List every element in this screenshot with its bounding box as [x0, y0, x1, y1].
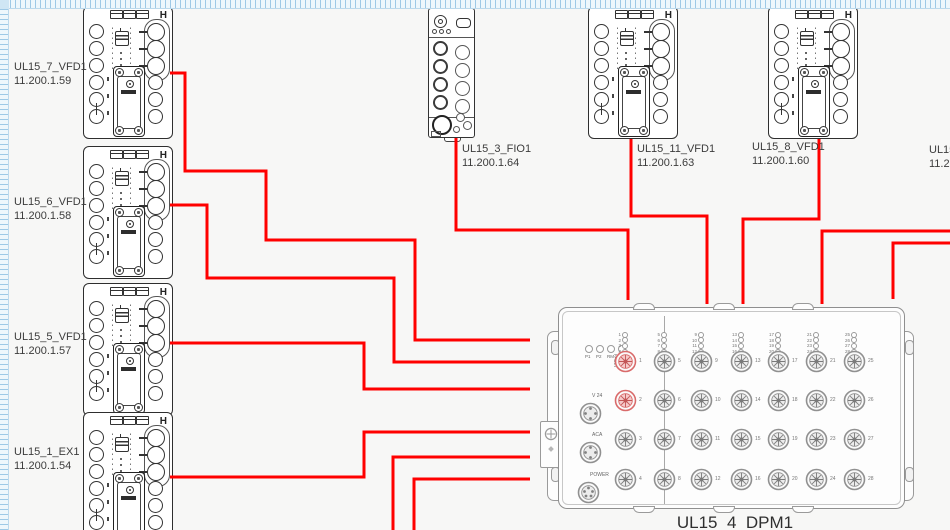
dot [120, 58, 122, 60]
port-number: 20 [792, 476, 798, 482]
dot [805, 52, 807, 54]
connector-icon [115, 31, 129, 46]
port-circle-icon [594, 75, 609, 90]
terminal-block-icon [795, 10, 808, 19]
tick-mark [792, 111, 794, 115]
vfd-module-body: H [83, 6, 173, 139]
port-number: 9 [715, 358, 718, 364]
port-number: 22 [830, 397, 836, 403]
device-name: UL15_11_VFD1 [637, 142, 715, 156]
status-led-p2 [596, 345, 604, 353]
terminal-block-icon [136, 10, 149, 19]
port-circle-icon [89, 215, 104, 230]
dpm-port-9 [690, 350, 713, 378]
label-bar [121, 230, 136, 234]
status-led-p1 [585, 345, 593, 353]
dotted-line [617, 27, 618, 69]
label-bar [806, 90, 821, 94]
tick-mark [107, 94, 109, 98]
port-number: 7 [678, 436, 681, 442]
device-name: UL15_6_VFD1 [14, 195, 87, 209]
faceplate [618, 66, 650, 137]
port-circle-icon [455, 45, 470, 60]
port-circle-icon [89, 58, 104, 73]
port-number: 15 [755, 436, 761, 442]
vfd-module-ul15-5[interactable]: H [83, 283, 173, 416]
led-icon [446, 29, 451, 34]
tick-mark [107, 217, 109, 221]
connector-label: ACA [592, 432, 602, 438]
port-circle-icon [89, 164, 104, 179]
status-window [456, 18, 471, 28]
port-circle-icon [653, 75, 668, 90]
port-circle-icon [833, 75, 848, 90]
vfd-module-body: H [83, 412, 173, 530]
cable-UL15_1_EX1[interactable] [170, 432, 530, 477]
dot [120, 192, 122, 194]
port-circle-icon [89, 75, 104, 90]
port-circle-icon [89, 481, 104, 496]
device-name: UL15_8_VFD1 [752, 140, 825, 154]
faceplate [113, 66, 145, 137]
tick-mark [792, 94, 794, 98]
vfd-module-ul15-6[interactable]: H [83, 146, 173, 279]
port-circle-icon [89, 335, 104, 350]
dpm-port-22 [805, 389, 828, 417]
status-led-label: P2 [596, 354, 602, 359]
port-link [139, 325, 147, 327]
dotted-line [797, 27, 798, 69]
screw-icon [639, 68, 648, 77]
port-number: 14 [755, 397, 761, 403]
port-circle-icon [774, 24, 789, 39]
mounting-tab [713, 506, 735, 513]
dpm-port-21 [805, 350, 828, 378]
vfd-module-body: H [83, 283, 173, 416]
device-label: UL15_5_VFD1 11.200.1.57 [14, 330, 87, 358]
screw-icon [800, 68, 809, 77]
device-label: UL15_11_VFD1 11.200.1.63 [637, 142, 715, 170]
tick-mark [107, 251, 109, 255]
device-name: UL15_7_VFD1 [14, 60, 87, 74]
diamond-mark [548, 446, 554, 452]
logo-icon [126, 80, 134, 88]
port-circle-icon [832, 23, 850, 41]
port-circle-icon [774, 58, 789, 73]
dpm-port-25 [843, 350, 866, 378]
dot [120, 335, 122, 337]
tick-mark [107, 371, 109, 375]
screw-icon [115, 68, 124, 77]
cable-offscreen-right-2[interactable] [893, 243, 950, 299]
dot [120, 52, 122, 54]
dpm-module[interactable]: P1 P2 RM FAULTV 24 ACA POWER 1234 1 2 3 [540, 303, 925, 530]
connector-icon [115, 308, 129, 323]
terminal-block-icon [123, 10, 136, 19]
key-slot [431, 131, 441, 137]
divider [429, 37, 474, 38]
port-circle-icon [147, 57, 165, 75]
port-circle-icon [89, 41, 104, 56]
tick-mark [107, 77, 109, 81]
logo-icon [631, 80, 639, 88]
logo-icon [811, 80, 819, 88]
port-circle-icon [148, 386, 163, 401]
tick-mark [792, 77, 794, 81]
tick-mark [107, 500, 109, 504]
port-circle-icon [148, 515, 163, 530]
tick-mark [612, 77, 614, 81]
screw-icon [134, 266, 143, 275]
port-number: 11 [715, 436, 720, 442]
terminal-block-icon [123, 150, 136, 159]
dpm-port-26 [843, 389, 866, 417]
port-circle-icon [433, 41, 448, 56]
device-name: UL15_5_VFD1 [14, 330, 87, 344]
port-circle-icon [455, 63, 470, 78]
cable-offscreen-bottom-2[interactable] [414, 479, 530, 530]
dpm-port-12 [690, 468, 713, 496]
device-name: UL15 [929, 143, 950, 157]
port-circle-icon [463, 121, 472, 130]
dpm-port-14 [730, 389, 753, 417]
port-circle-icon [455, 81, 470, 96]
port-link [824, 31, 832, 33]
port-circle-icon [148, 92, 163, 107]
dpm-port-19 [767, 428, 790, 456]
device-name: UL15_3_FIO1 [462, 142, 531, 156]
dotted-line [112, 27, 113, 69]
dot [625, 52, 627, 54]
tick-mark [107, 517, 109, 521]
port-number: 5 [678, 358, 681, 364]
mounting-tab [633, 506, 655, 513]
mounting-tab [713, 303, 735, 310]
terminal-block-icon [110, 10, 123, 19]
mounting-hole [905, 340, 914, 355]
connector-icon [115, 171, 129, 186]
connector-icon [620, 31, 634, 46]
port-number: 19 [792, 436, 798, 442]
port-circle-icon [148, 109, 163, 124]
cable-UL15_7_VFD1[interactable] [170, 73, 530, 340]
port-circle-icon [148, 369, 163, 384]
port-number: 18 [792, 397, 798, 403]
port-number: 3 [639, 436, 642, 442]
logo-icon [126, 357, 134, 365]
screw-icon [115, 208, 124, 217]
port-number: 12 [715, 476, 721, 482]
dot [625, 58, 627, 60]
terminal-block-icon [641, 10, 654, 19]
port-circle-icon [148, 249, 163, 264]
port-number: 26 [868, 397, 874, 403]
diagram-canvas[interactable]: P1 P2 RM FAULTV 24 ACA POWER 1234 1 2 3 [0, 0, 950, 530]
dpm-housing: P1 P2 RM FAULTV 24 ACA POWER 1234 1 2 3 [558, 307, 905, 509]
port-number: 25 [868, 358, 874, 364]
vfd-module-ul15-8[interactable]: H [768, 6, 858, 139]
dpm-port-10 [690, 389, 713, 417]
connector-power [577, 481, 600, 509]
screw-icon [134, 126, 143, 135]
connector-label: V 24 [592, 393, 602, 399]
port-circle-icon [147, 429, 165, 447]
label-bar [626, 90, 641, 94]
device-ip: 11.200.1.58 [14, 209, 87, 223]
port-circle-icon [832, 40, 850, 58]
dpm-port-1 [614, 350, 637, 378]
port-circle-icon [89, 24, 104, 39]
port-link [96, 380, 98, 392]
tick-mark [107, 111, 109, 115]
screw-icon [620, 126, 629, 135]
port-link [139, 188, 147, 190]
dpm-port-13 [730, 350, 753, 378]
port-number: 13 [755, 358, 761, 364]
dotted-line [130, 27, 131, 69]
screw-icon [115, 266, 124, 275]
device-ip: 11.200.1.64 [462, 156, 531, 170]
port-link [139, 31, 147, 33]
dpm-port-18 [767, 389, 790, 417]
screw-icon [115, 345, 124, 354]
dot [805, 58, 807, 60]
dot [120, 464, 122, 466]
screw-icon [134, 68, 143, 77]
dpm-port-7 [653, 428, 676, 456]
port-circle-icon [89, 352, 104, 367]
fio-module[interactable] [428, 8, 475, 138]
dotted-line [112, 304, 113, 346]
port-number: 8 [678, 476, 681, 482]
terminal-block-icon [615, 10, 628, 19]
dotted-line [112, 433, 113, 475]
dot [120, 458, 122, 460]
device-label: UL15 11.2 [929, 143, 950, 171]
dotted-line [635, 27, 636, 69]
terminal-block-icon [821, 10, 834, 19]
dpm-port-2 [614, 389, 637, 417]
port-circle-icon [653, 92, 668, 107]
port-circle-icon [89, 198, 104, 213]
device-ip: 11.2 [929, 157, 950, 171]
port-circle-icon [652, 40, 670, 58]
port-number: 1 [639, 358, 642, 364]
connector-v24 [579, 402, 602, 430]
port-circle-icon [89, 430, 104, 445]
port-circle-icon [147, 300, 165, 318]
port-circle-icon [832, 57, 850, 75]
port-circle-icon [453, 126, 460, 133]
dpm-port-5 [653, 350, 676, 378]
dpm-port-17 [767, 350, 790, 378]
port-link [139, 437, 147, 439]
port-circle-icon [89, 301, 104, 316]
port-link [601, 103, 603, 115]
port-circle-icon [89, 447, 104, 462]
port-circle-icon [774, 41, 789, 56]
port-link [96, 243, 98, 255]
dpm-port-16 [730, 468, 753, 496]
device-label: UL15_8_VFD1 11.200.1.60 [752, 140, 825, 168]
terminal-block-icon [123, 416, 136, 425]
port-link [644, 48, 652, 50]
vfd-module-ul15-7[interactable]: H [83, 6, 173, 139]
dotted-line [815, 27, 816, 69]
port-number: 2 [639, 397, 642, 403]
port-link [644, 31, 652, 33]
logo-icon [126, 220, 134, 228]
led-icon [432, 29, 437, 34]
dpm-port-3 [614, 428, 637, 456]
device-name: UL15_1_EX1 [14, 445, 79, 459]
port-circle-icon [147, 463, 165, 481]
terminal-block-icon [110, 416, 123, 425]
port-circle-icon [148, 481, 163, 496]
screw-icon [115, 403, 124, 412]
faceplate [798, 66, 830, 137]
ruler-corner [0, 0, 9, 9]
logo-icon [126, 486, 134, 494]
tick-mark [107, 354, 109, 358]
screw-icon [115, 126, 124, 135]
port-link [139, 454, 147, 456]
port-circle-icon [455, 99, 470, 114]
terminal-block-icon [136, 150, 149, 159]
port-number: 6 [678, 397, 681, 403]
dpm-port-20 [767, 468, 790, 496]
port-circle-icon [652, 23, 670, 41]
port-number: 23 [830, 436, 836, 442]
dotted-line [130, 433, 131, 475]
port-number: 21 [830, 358, 836, 364]
dpm-port-27 [843, 428, 866, 456]
cable-UL15_5_VFD1[interactable] [170, 343, 530, 389]
port-link [96, 103, 98, 115]
port-circle-icon [148, 352, 163, 367]
device-ip: 11.200.1.59 [14, 74, 87, 88]
port-circle-icon [833, 109, 848, 124]
port-circle-icon [438, 19, 443, 24]
terminal-block-icon [110, 150, 123, 159]
terminal-block-icon [136, 416, 149, 425]
port-circle-icon [833, 92, 848, 107]
dpm-port-23 [805, 428, 828, 456]
terminal-block-icon [808, 10, 821, 19]
port-circle-icon [148, 215, 163, 230]
dot [120, 329, 122, 331]
port-circle-icon [433, 95, 448, 110]
port-circle-icon [433, 59, 448, 74]
port-circle-icon [89, 181, 104, 196]
vfd-module-body: H [83, 146, 173, 279]
label-bar [121, 496, 136, 500]
connector-aca [579, 441, 602, 469]
port-circle-icon [652, 57, 670, 75]
port-circle-icon [147, 23, 165, 41]
dpm-port-24 [805, 468, 828, 496]
port-link [824, 48, 832, 50]
port-circle-icon [147, 446, 165, 464]
screw-icon [134, 474, 143, 483]
screw-icon [639, 126, 648, 135]
dotted-line [130, 167, 131, 209]
port-link [781, 103, 783, 115]
port-circle-icon [147, 40, 165, 58]
port-circle-icon [147, 334, 165, 352]
device-label: UL15_3_FIO1 11.200.1.64 [462, 142, 531, 170]
tick-mark [107, 234, 109, 238]
port-number: 27 [868, 436, 874, 442]
vfd-module-ul15-1[interactable]: H [83, 412, 173, 530]
connector-label: POWER [590, 472, 609, 478]
port-circle-icon [594, 24, 609, 39]
screw-icon [800, 126, 809, 135]
device-label: UL15_6_VFD1 11.200.1.58 [14, 195, 87, 223]
device-ip: 11.200.1.63 [637, 156, 715, 170]
port-circle-icon [147, 163, 165, 181]
tick-mark [107, 388, 109, 392]
dpm-module-label: UL15_4_DPM1 [640, 513, 830, 530]
faceplate [113, 343, 145, 414]
terminal-block-icon [123, 287, 136, 296]
port-circle-icon [89, 464, 104, 479]
connector-icon [800, 31, 814, 46]
dotted-line [130, 304, 131, 346]
terminal-block-icon [628, 10, 641, 19]
port-number: 10 [715, 397, 721, 403]
screw-icon [819, 126, 828, 135]
device-ip: 11.200.1.60 [752, 154, 825, 168]
device-label: UL15_7_VFD1 11.200.1.59 [14, 60, 87, 88]
port-circle-icon [89, 318, 104, 333]
dpm-port-15 [730, 428, 753, 456]
status-led-label: P1 [585, 354, 591, 359]
vfd-module-ul15-11[interactable]: H [588, 6, 678, 139]
screw-icon [544, 427, 558, 441]
led-icon [439, 29, 444, 34]
port-number: 28 [868, 476, 874, 482]
port-link [139, 171, 147, 173]
tick-mark [107, 483, 109, 487]
screw-icon [134, 403, 143, 412]
label-bar [121, 90, 136, 94]
screw-icon [115, 474, 124, 483]
faceplate [113, 206, 145, 277]
port-circle-icon [433, 77, 448, 92]
dot [120, 198, 122, 200]
mounting-tab [633, 303, 655, 310]
port-link [139, 48, 147, 50]
port-circle-icon [594, 41, 609, 56]
port-number: 17 [792, 358, 798, 364]
port-number: 4 [639, 476, 642, 482]
connector-icon [115, 437, 129, 452]
screw-icon [620, 68, 629, 77]
port-circle-icon [774, 75, 789, 90]
port-circle-icon [147, 317, 165, 335]
port-circle-icon [653, 109, 668, 124]
port-circle-icon [148, 498, 163, 513]
port-circle-icon [147, 180, 165, 198]
port-number: 16 [755, 476, 761, 482]
device-ip: 11.200.1.54 [14, 459, 79, 473]
port-circle-icon [147, 197, 165, 215]
vfd-module-body: H [588, 6, 678, 139]
screw-icon [134, 345, 143, 354]
device-label: UL15_1_EX1 11.200.1.54 [14, 445, 79, 473]
fio-module-body [428, 8, 475, 138]
